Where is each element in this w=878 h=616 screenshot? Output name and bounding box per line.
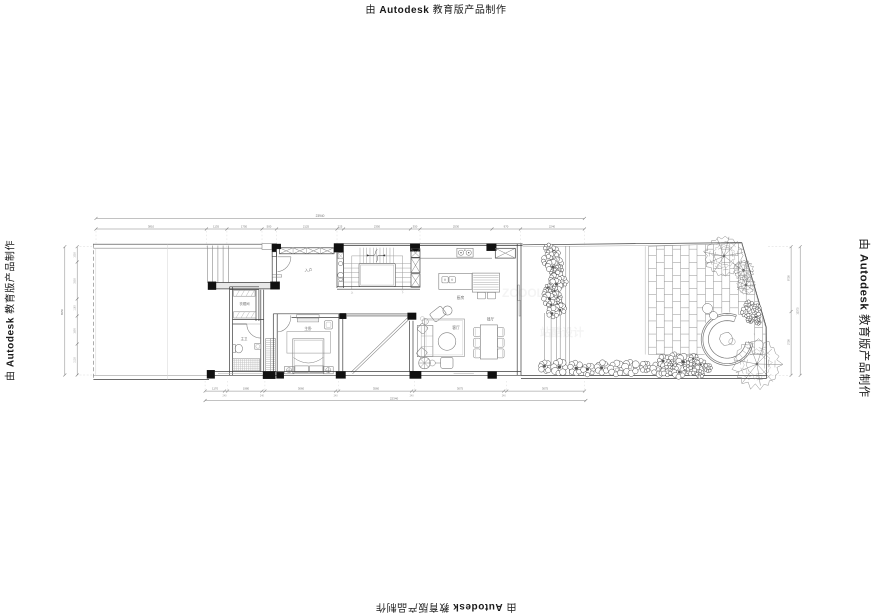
svg-text:3060: 3060 (298, 387, 305, 391)
svg-text:餐厅: 餐厅 (487, 316, 495, 321)
svg-text:3560: 3560 (373, 387, 380, 391)
svg-text:240: 240 (502, 394, 507, 397)
svg-text:主卧: 主卧 (304, 326, 312, 331)
svg-text:2130: 2130 (73, 357, 76, 363)
svg-text:3810: 3810 (148, 225, 155, 229)
svg-text:23940: 23940 (316, 214, 325, 218)
svg-text:客厅: 客厅 (452, 325, 460, 330)
svg-text:240: 240 (334, 394, 339, 397)
svg-text:1160: 1160 (73, 305, 76, 311)
svg-text:下: 下 (401, 291, 404, 294)
svg-text:入户: 入户 (305, 267, 313, 273)
svg-text:12375: 12375 (795, 307, 799, 315)
svg-text:主卫: 主卫 (241, 336, 248, 341)
svg-text:970: 970 (504, 225, 509, 229)
svg-text:1050: 1050 (73, 252, 76, 258)
svg-text:1170: 1170 (212, 387, 218, 391)
svg-text:厨房: 厨房 (457, 295, 465, 300)
svg-text:1135: 1135 (213, 225, 219, 229)
svg-text:225: 225 (338, 225, 343, 229)
svg-text:240: 240 (223, 394, 228, 397)
svg-text:2750: 2750 (786, 339, 790, 345)
svg-text:2125: 2125 (303, 225, 310, 229)
svg-text:2350: 2350 (374, 225, 381, 229)
svg-text:240: 240 (260, 394, 265, 397)
svg-text:1980: 1980 (243, 387, 250, 391)
svg-text:上: 上 (351, 291, 354, 295)
svg-text:1750: 1750 (241, 225, 248, 229)
svg-text:2530: 2530 (453, 225, 460, 229)
svg-text:站酷设计: 站酷设计 (540, 325, 584, 339)
svg-text:3075: 3075 (457, 387, 464, 391)
svg-text:2240: 2240 (549, 225, 556, 229)
svg-text:240: 240 (410, 394, 415, 397)
svg-text:ZCOOL: ZCOOL (502, 286, 544, 300)
svg-text:1890: 1890 (73, 328, 76, 334)
svg-text:8750: 8750 (786, 275, 790, 281)
svg-text:8950: 8950 (60, 308, 64, 315)
svg-text:2550: 2550 (73, 278, 76, 284)
svg-text:500: 500 (267, 225, 272, 229)
svg-text:3075: 3075 (542, 387, 549, 391)
svg-text:22340: 22340 (390, 396, 399, 400)
svg-text:350: 350 (413, 225, 418, 229)
svg-text:衣帽间: 衣帽间 (239, 301, 250, 306)
